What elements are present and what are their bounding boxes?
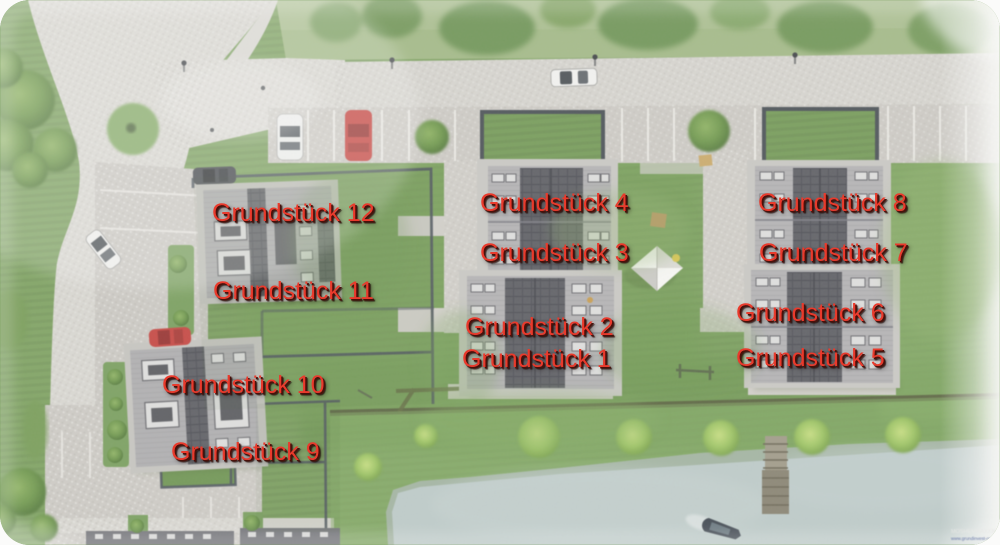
svg-text:www.grundinvest-ostfriesland.d: www.grundinvest-ostfriesland.de — [951, 536, 1000, 541]
svg-text:MOSHEMMAXXBLZB: MOSHEMMAXXBLZB — [951, 529, 1000, 535]
